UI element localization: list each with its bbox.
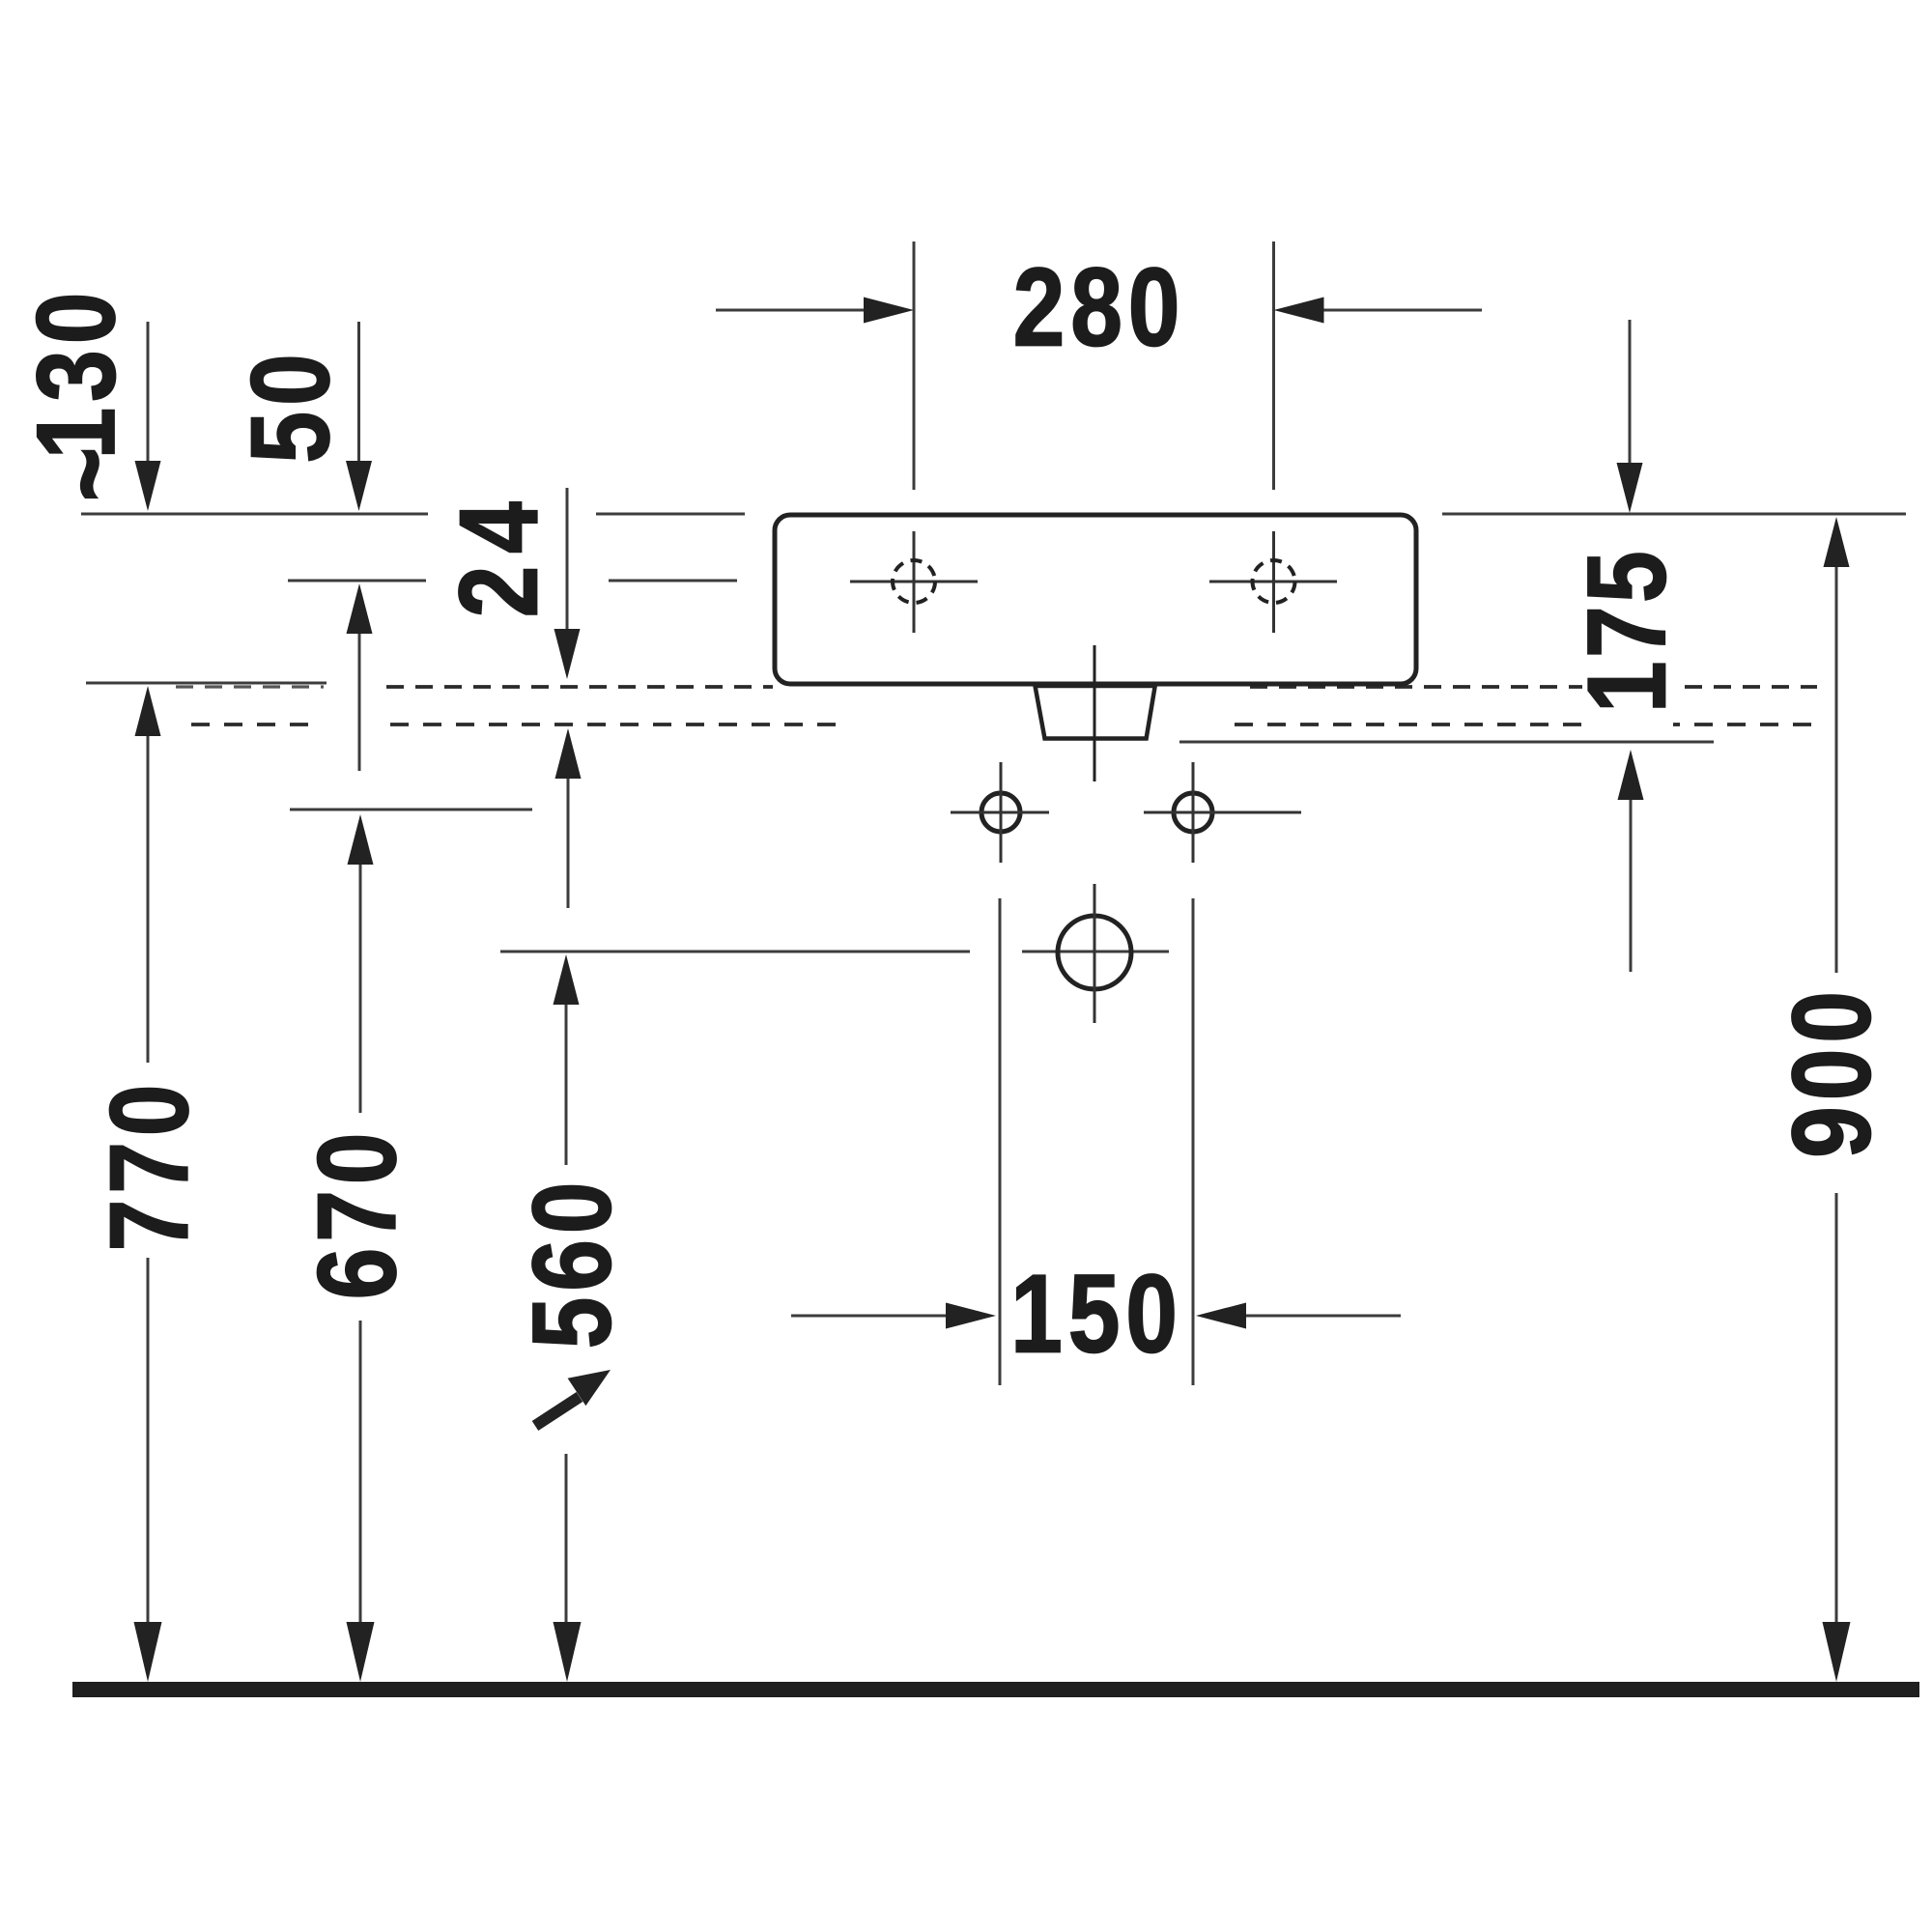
svg-text:280: 280	[1013, 245, 1186, 370]
svg-text:50: 50	[228, 348, 353, 463]
svg-text:560: 560	[509, 1177, 634, 1350]
svg-text:900: 900	[1770, 985, 1894, 1158]
svg-text:770: 770	[87, 1079, 212, 1252]
svg-text:~130: ~130	[14, 287, 151, 502]
svg-text:175: 175	[1565, 548, 1690, 713]
svg-text:670: 670	[295, 1127, 419, 1300]
svg-text:24: 24	[437, 490, 561, 618]
svg-text:150: 150	[1010, 1252, 1183, 1377]
